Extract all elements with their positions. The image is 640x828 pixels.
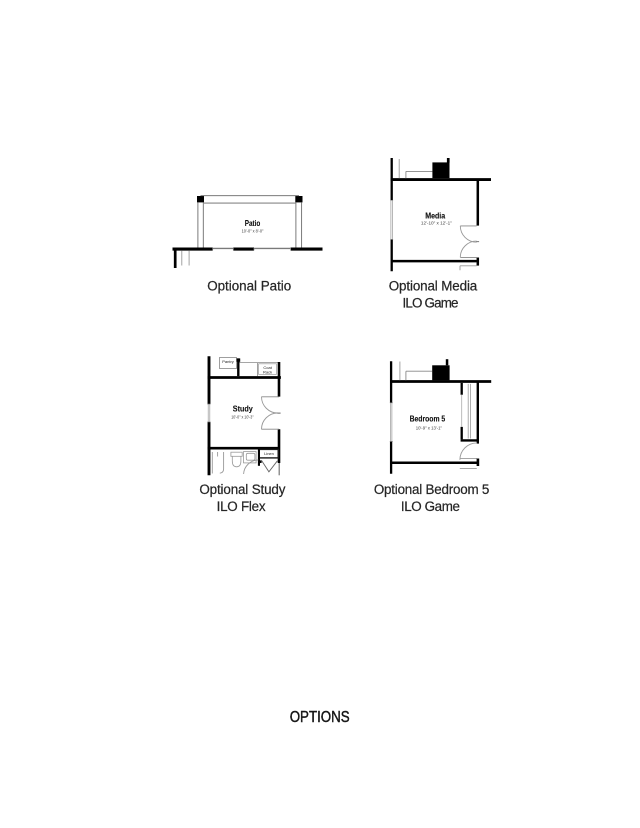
svg-text:Rack: Rack (263, 369, 272, 374)
svg-text:Optional Patio: Optional Patio (207, 279, 291, 294)
svg-text:Optional Media: Optional Media (389, 279, 478, 294)
svg-text:ILO Game: ILO Game (401, 499, 460, 514)
svg-text:Optional Study: Optional Study (199, 482, 285, 497)
svg-text:Optional Bedroom 5: Optional Bedroom 5 (374, 482, 489, 497)
svg-text:12'-10" x 12'-1": 12'-10" x 12'-1" (421, 220, 452, 225)
svg-text:ILO Game: ILO Game (403, 295, 459, 310)
svg-text:Patio: Patio (245, 219, 261, 228)
svg-text:10'-0" x 10'-3": 10'-0" x 10'-3" (231, 414, 254, 419)
svg-text:10'-9" x 13'-1": 10'-9" x 13'-1" (416, 425, 443, 430)
svg-text:OPTIONS: OPTIONS (290, 709, 350, 726)
svg-text:Pantry: Pantry (222, 359, 234, 364)
svg-text:Linen: Linen (264, 451, 274, 456)
svg-text:Study: Study (233, 404, 253, 413)
svg-text:10'-0" x 8'-0": 10'-0" x 8'-0" (242, 228, 264, 233)
svg-text:Media: Media (425, 212, 445, 221)
svg-text:Bedroom 5: Bedroom 5 (410, 414, 446, 423)
svg-text:ILO Flex: ILO Flex (217, 499, 266, 514)
